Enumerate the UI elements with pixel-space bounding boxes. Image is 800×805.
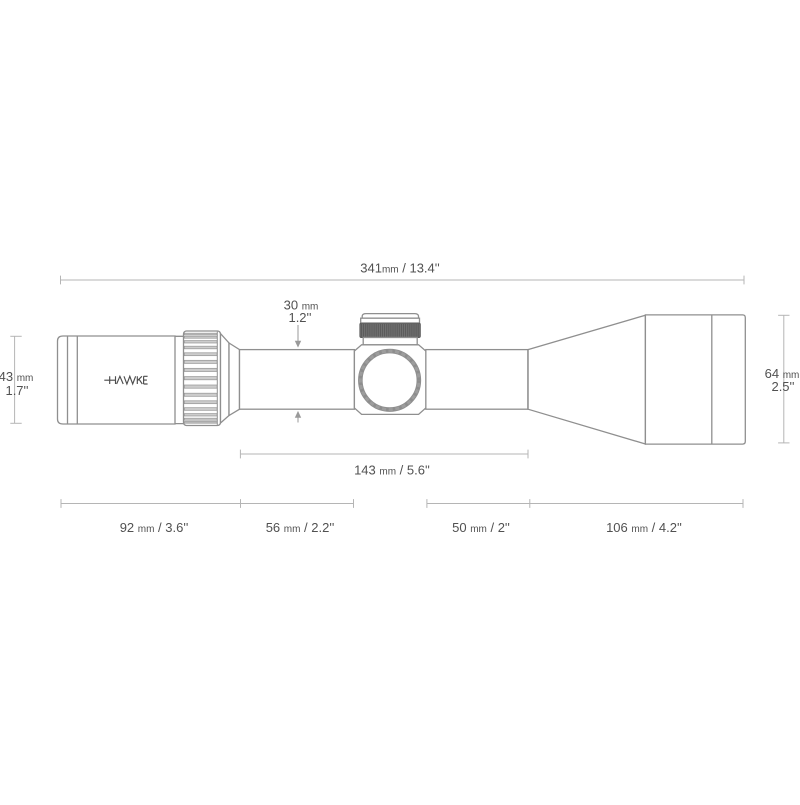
svg-text:2.5'': 2.5'' xyxy=(771,379,794,394)
svg-text:56 mm / 2.2'': 56 mm / 2.2'' xyxy=(266,520,335,535)
svg-text:1.2'': 1.2'' xyxy=(288,310,311,325)
svg-text:92 mm / 3.6'': 92 mm / 3.6'' xyxy=(120,520,189,535)
svg-text:1.7'': 1.7'' xyxy=(5,383,28,398)
svg-text:341mm / 13.4'': 341mm / 13.4'' xyxy=(360,261,439,276)
